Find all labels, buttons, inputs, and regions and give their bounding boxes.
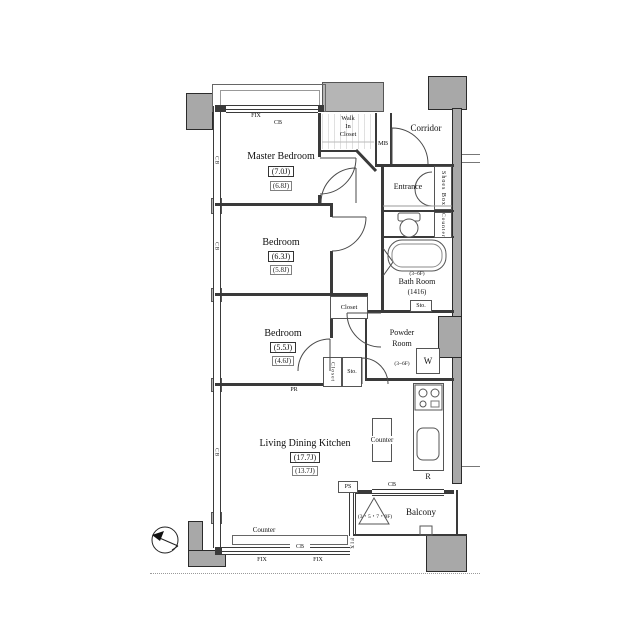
kitchen-sink: [417, 428, 439, 460]
toilet-bowl: [400, 219, 418, 237]
fix-bottom-1-value: FIX: [257, 557, 267, 563]
stove-grill: [431, 401, 439, 407]
bedroom2-size-alt: (5.8J): [226, 265, 336, 275]
bedroom2-name: Bedroom: [262, 237, 299, 248]
label-cb-balcony-window: CB: [382, 482, 402, 489]
cb-left-3-value: CB: [213, 448, 219, 457]
wic-label-3: Closet: [322, 131, 374, 138]
room-label-bath: Bath Room: [383, 277, 451, 286]
label-fix-bottom-2: FIX: [306, 557, 330, 564]
bedroom3-size-alt: (4.6J): [228, 356, 338, 366]
plan-linework: [0, 0, 640, 640]
label-cb-left-1: CB: [213, 156, 219, 165]
corridor-extension-line-1: [462, 154, 480, 155]
stove-burner-3: [420, 401, 426, 407]
corridor-name: Corridor: [411, 123, 442, 133]
cb-top-value: CB: [274, 120, 282, 126]
master-size: (7.0J): [226, 166, 336, 177]
label-counter-bottom: Counter: [244, 526, 284, 534]
bath-size: (1416): [383, 288, 451, 296]
ldk-size-value: (17.7J): [290, 452, 320, 463]
powder-floors-value: (3~6F): [394, 361, 409, 367]
wic-line2: In: [345, 123, 350, 130]
counter-bottom-value: Counter: [253, 526, 276, 534]
pr-value: PR: [290, 387, 297, 393]
master-size-alt: (6.8J): [226, 181, 336, 191]
master-size-value: (7.0J): [268, 166, 294, 177]
floor-plan: Shoes Box Counter Sto. W Closet Closet S…: [0, 0, 640, 640]
fix-top-value: FIX: [251, 113, 261, 119]
corridor-extension-line-2: [462, 162, 480, 163]
bathtub-outer: [388, 240, 446, 271]
cb-bottom-value: CB: [296, 544, 304, 550]
label-cb-left-2: CB: [213, 242, 219, 251]
meter-box-label: MB: [375, 140, 391, 147]
refrigerator-value: R: [425, 472, 430, 481]
balcony-floors-value: (3・5・7・9F): [358, 514, 392, 520]
room-label-balcony: Balcony: [398, 507, 444, 517]
label-cb-left-3: CB: [213, 448, 219, 457]
label-fix-bottom-1: FIX: [250, 557, 274, 564]
master-size-alt-value: (6.8J): [270, 181, 292, 191]
cb-balcony-value: CB: [388, 482, 396, 488]
door-entrance-closet-lower: [415, 189, 432, 206]
label-cb-bottom: CB: [290, 544, 310, 551]
mb-value: MB: [378, 140, 388, 147]
balcony-drain-box: [420, 526, 432, 535]
bedroom2-size: (6.3J): [226, 251, 336, 262]
room-label-master: Master Bedroom: [226, 151, 336, 163]
ldk-size-alt-value: (13.7J): [292, 466, 318, 476]
stove-burner-1: [419, 389, 427, 397]
label-kitchen-counter: Counter: [366, 436, 398, 444]
label-fix-balcony-side: FIX: [348, 538, 354, 550]
site-boundary-dotted-line: [150, 573, 480, 574]
right-extension-line: [462, 466, 480, 467]
powder-line1: Powder: [390, 328, 414, 337]
wic-line1: Walk: [341, 115, 355, 122]
bedroom3-name: Bedroom: [264, 328, 301, 339]
compass-icon: [152, 527, 178, 553]
stove: [415, 385, 442, 410]
wic-label-2: In: [322, 123, 374, 130]
bath-name: Bath Room: [399, 277, 436, 286]
fix-bottom-2-value: FIX: [313, 557, 323, 563]
bedroom2-size-value: (6.3J): [268, 251, 294, 262]
door-bedroom2: [332, 217, 366, 251]
entrance-name: Entrance: [394, 182, 422, 191]
label-refrigerator: R: [420, 472, 436, 481]
cb-left-2-value: CB: [213, 242, 219, 251]
room-label-powder-1: Powder: [376, 328, 428, 337]
bath-size-value: (1416): [408, 288, 427, 296]
room-label-bedroom3: Bedroom: [228, 328, 338, 340]
bedroom2-size-alt-value: (5.8J): [270, 265, 292, 275]
wic-line3: Closet: [340, 131, 357, 138]
bathtub-inner: [392, 244, 442, 267]
wic-label-1: Walk: [322, 115, 374, 122]
room-label-powder-2: Room: [376, 339, 428, 348]
door-front: [392, 128, 428, 164]
bedroom3-size-alt-value: (4.6J): [272, 356, 294, 366]
label-cb-top: CB: [266, 120, 290, 127]
powder-line2: Room: [392, 339, 412, 348]
bedroom3-size-value: (5.5J): [270, 342, 296, 353]
ldk-name: Living Dining Kitchen: [259, 438, 350, 449]
room-label-bedroom2: Bedroom: [226, 237, 336, 249]
label-pr: PR: [284, 387, 304, 394]
room-label-corridor: Corridor: [400, 123, 452, 133]
door-hall-ldk: [362, 358, 388, 384]
bedroom3-size: (5.5J): [228, 342, 338, 353]
label-fix-top: FIX: [244, 113, 268, 120]
balcony-name: Balcony: [406, 507, 436, 517]
kitchen-counter-value: Counter: [371, 436, 394, 444]
room-label-ldk: Living Dining Kitchen: [240, 438, 370, 450]
ldk-size-alt: (13.7J): [240, 466, 370, 476]
balcony-floors: (3・5・7・9F): [352, 514, 398, 520]
powder-floors: (3~6F): [388, 361, 416, 367]
fix-side-value: FIX: [348, 538, 354, 550]
room-label-entrance: Entrance: [385, 182, 431, 191]
cb-left-1-value: CB: [213, 156, 219, 165]
ldk-size: (17.7J): [240, 452, 370, 463]
stove-burner-2: [431, 389, 439, 397]
door-walkin-closet: [356, 150, 376, 171]
master-name: Master Bedroom: [247, 151, 315, 162]
